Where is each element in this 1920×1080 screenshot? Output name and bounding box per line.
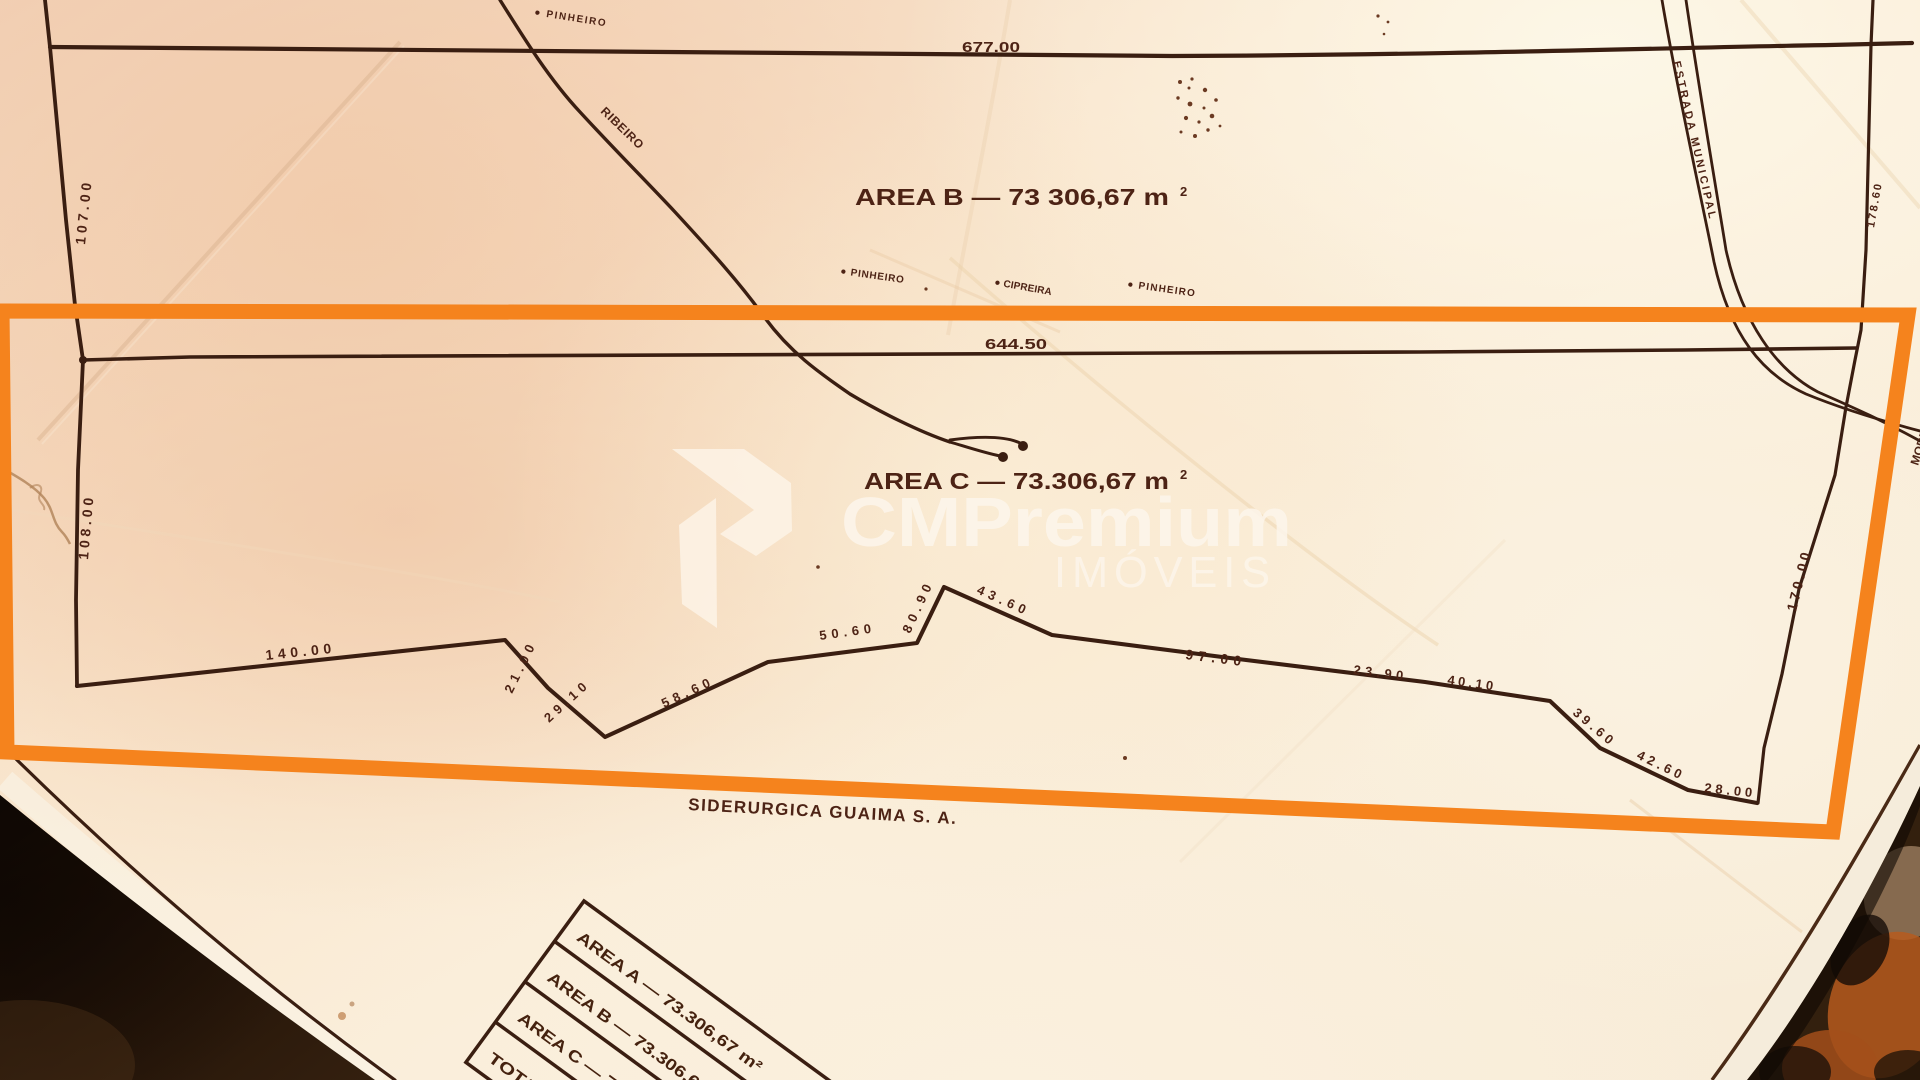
svg-text:AREA B — 73 306,67 m: AREA B — 73 306,67 m — [855, 184, 1169, 210]
svg-text:677.00: 677.00 — [962, 39, 1020, 56]
svg-text:2: 2 — [1180, 467, 1187, 482]
svg-text:IMÓVEIS: IMÓVEIS — [1054, 548, 1276, 597]
svg-text:2: 2 — [1180, 184, 1187, 199]
svg-text:644.50: 644.50 — [985, 336, 1047, 353]
